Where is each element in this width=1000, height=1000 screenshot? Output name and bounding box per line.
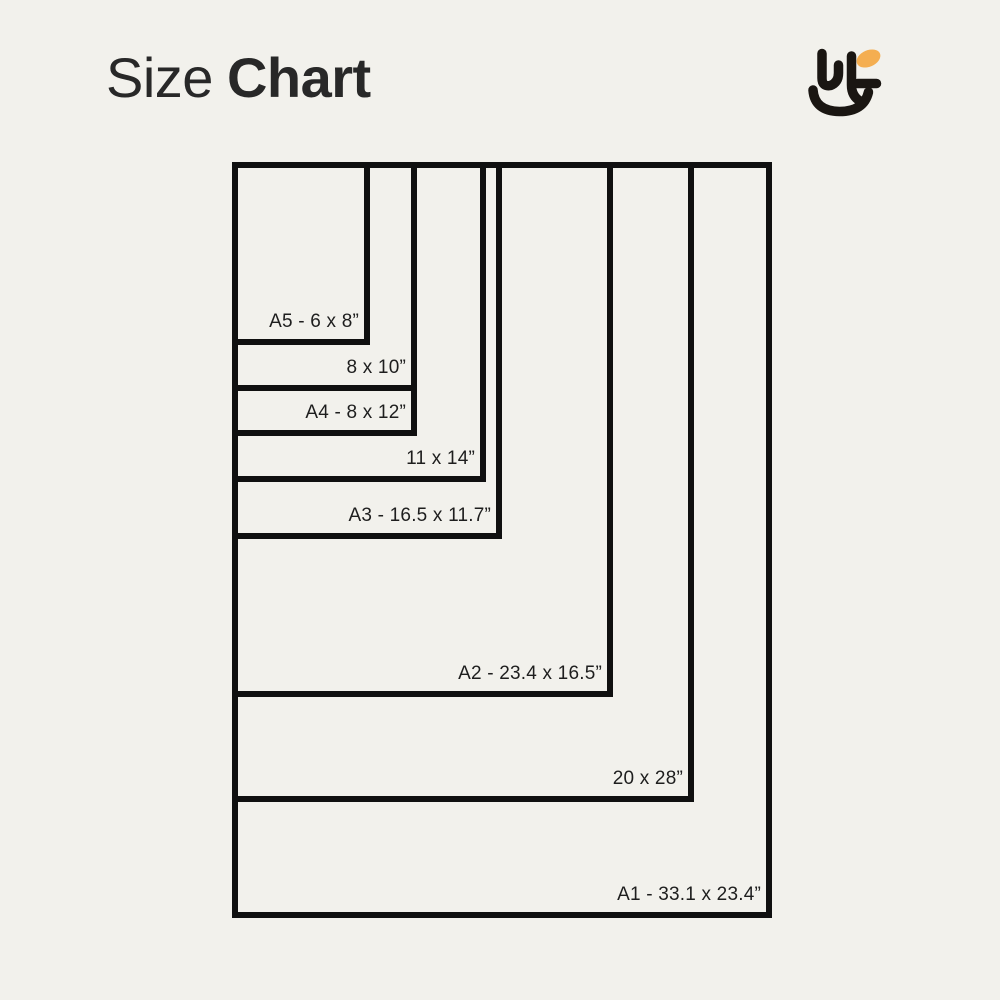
nested-size-chart: A5 - 6 x 8”8 x 10”A4 - 8 x 12”11 x 14”A3… (232, 162, 772, 918)
logo-accent-dot (854, 46, 884, 71)
page-title-bold: Chart (227, 46, 371, 109)
logo-smile-stroke (813, 90, 869, 112)
logo-h-stroke (822, 54, 839, 86)
size-label-a1: A1 - 33.1 x 23.4” (617, 884, 761, 906)
page-title: SizeChart (106, 50, 371, 106)
brand-logo-icon (793, 33, 903, 133)
size-rect-a1: A1 - 33.1 x 23.4” (232, 162, 772, 918)
page-title-light: Size (106, 46, 213, 109)
size-chart-page: SizeChart A5 - 6 x 8”8 x 10”A4 - 8 x 12”… (0, 0, 1000, 1000)
